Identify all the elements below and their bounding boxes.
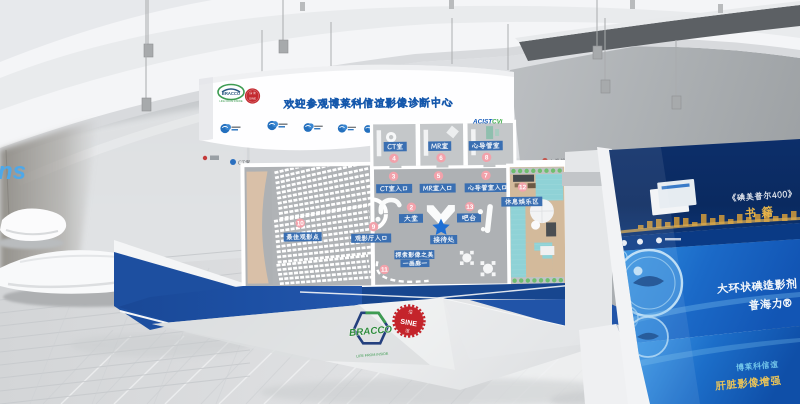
svg-text:2: 2: [410, 204, 414, 211]
svg-text:10: 10: [297, 220, 305, 227]
svg-text:7: 7: [484, 173, 488, 180]
svg-text:9: 9: [372, 224, 376, 231]
svg-text:BRACCO: BRACCO: [222, 91, 241, 96]
svg-text:SINE: SINE: [249, 97, 256, 101]
svg-text:12: 12: [519, 184, 527, 191]
svg-text:ACIST: ACIST: [472, 119, 493, 126]
svg-text:3: 3: [392, 173, 396, 180]
svg-text:6: 6: [439, 155, 443, 162]
svg-text:5: 5: [437, 173, 441, 180]
svg-text:8: 8: [485, 155, 489, 162]
svg-text:CVi: CVi: [492, 119, 503, 126]
svg-text:13: 13: [466, 204, 474, 211]
svg-text:ns: ns: [0, 158, 26, 185]
svg-text:LIFE FROM INSIDE: LIFE FROM INSIDE: [219, 99, 242, 103]
svg-text:4: 4: [392, 155, 396, 162]
svg-text:11: 11: [381, 267, 388, 274]
